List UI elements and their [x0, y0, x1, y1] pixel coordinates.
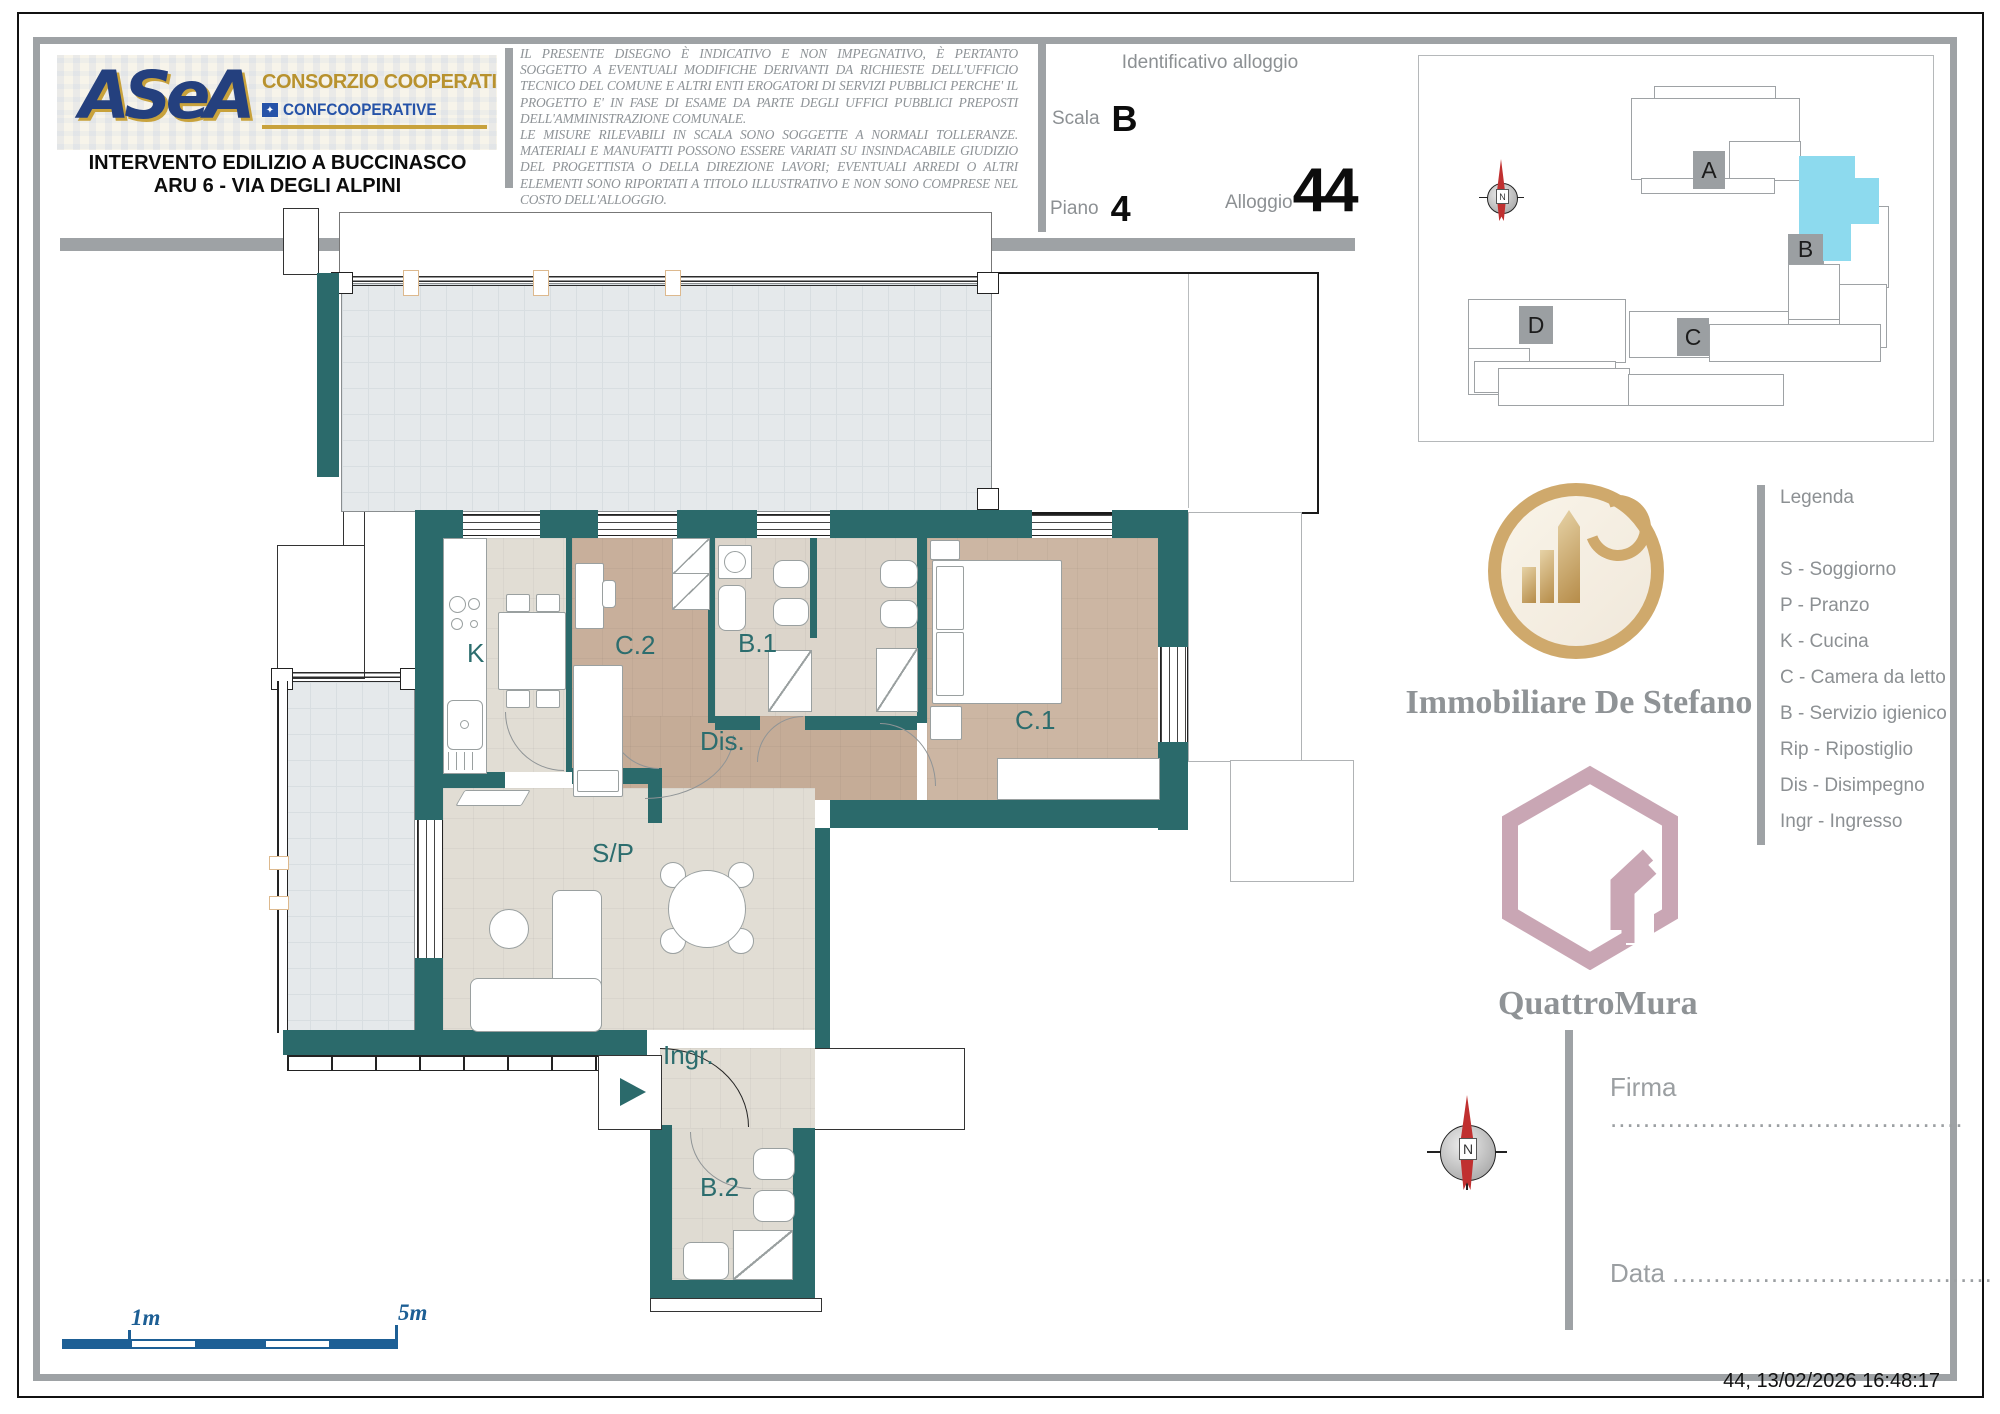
bathroom-sink — [718, 585, 746, 631]
legend-item: Rip - Ripostiglio — [1780, 732, 1947, 768]
sofa-seat — [470, 978, 602, 1032]
project-title: INTERVENTO EDILIZIO A BUCCINASCO ARU 6 -… — [55, 152, 500, 198]
tv-shelf — [455, 790, 530, 806]
room-label-b1: B.1 — [738, 628, 777, 659]
project-title-line1: INTERVENTO EDILIZIO A BUCCINASCO — [55, 152, 500, 175]
project-title-line2: ARU 6 - VIA DEGLI ALPINI — [55, 175, 500, 198]
bidet — [880, 600, 918, 628]
disclaimer-paragraph-2: LE MISURE RILEVABILI IN SCALA SONO SOGGE… — [520, 127, 1018, 208]
legend-item: Dis - Disimpegno — [1780, 768, 1947, 804]
entrance-arrow-icon — [620, 1078, 646, 1106]
scale-label-1m: 1m — [131, 1305, 160, 1331]
legend-item: C - Camera da letto — [1780, 660, 1947, 696]
cooktop-burner — [449, 596, 466, 613]
shower — [876, 648, 918, 712]
room-label-k: K — [467, 638, 484, 669]
room-label-c2: C.2 — [615, 630, 655, 661]
balcony — [283, 681, 415, 1032]
nightstand — [930, 706, 962, 740]
legend-item: Ingr - Ingresso — [1780, 804, 1947, 840]
consorzio-text: CONSORZIO COOPERATIVOSOC. COOP. — [262, 71, 497, 93]
window — [463, 514, 540, 536]
scala-label: Scala — [1052, 108, 1100, 130]
agency-logo-bar — [1522, 567, 1536, 603]
scale-tick — [395, 1325, 398, 1340]
builder-name: QuattroMura — [1498, 985, 1688, 1023]
context-outline — [277, 545, 365, 679]
wardrobe — [672, 573, 710, 610]
keyplan-outline — [1788, 264, 1840, 320]
confcooperative-icon: ✦ — [262, 103, 278, 117]
legend-bar — [1757, 485, 1765, 845]
adjacent-unit-outline — [1230, 760, 1354, 882]
adjacent-unit-outline — [990, 272, 1319, 514]
keyplan-outline — [1709, 324, 1881, 362]
agency-name: Immobiliare De Stefano — [1398, 684, 1760, 722]
asea-logo-text: ASeA — [79, 57, 249, 134]
chair — [536, 594, 560, 612]
wall-segment — [793, 1128, 815, 1298]
cooktop-burner — [468, 598, 480, 610]
window — [598, 514, 677, 536]
block-label-b: B — [1788, 234, 1823, 264]
agency-logo-tower — [1558, 510, 1580, 603]
legend-item: P - Pranzo — [1780, 588, 1947, 624]
legend-item: B - Servizio igienico — [1780, 696, 1947, 732]
railing-post — [977, 488, 999, 510]
legend-item: K - Cucina — [1780, 624, 1947, 660]
piano-value: 4 — [1111, 188, 1131, 230]
sink-drain — [460, 720, 469, 729]
wall-segment — [810, 538, 817, 638]
railing-post — [977, 272, 999, 294]
window — [1160, 647, 1188, 742]
room-label-ingr: Ingr. — [663, 1040, 714, 1071]
toilet — [753, 1148, 795, 1180]
wall-segment — [815, 828, 830, 1048]
terrace — [341, 283, 992, 512]
building-key-plan: A B C D N — [1418, 55, 1934, 442]
window — [1032, 514, 1112, 536]
logo-underline — [262, 125, 487, 129]
bidet — [773, 598, 809, 626]
context-outline — [283, 208, 319, 275]
north-letter: N — [1459, 1138, 1477, 1160]
wall-segment — [830, 510, 1032, 538]
disclaimer-paragraph-1: IL PRESENTE DISEGNO È INDICATIVO E NON I… — [520, 46, 1018, 127]
kitchen-drawers — [448, 752, 480, 770]
adjacent-unit-outline — [1188, 512, 1302, 762]
builder-logo-hexagon — [1500, 765, 1680, 970]
room-label-b2: B.2 — [700, 1172, 739, 1203]
keyplan-outline — [1628, 374, 1784, 406]
wall-segment — [677, 510, 757, 538]
confcooperative-text: CONFCOOPERATIVE — [283, 100, 437, 120]
data-line: Data ...................................… — [1610, 1258, 1993, 1289]
scale-tick — [128, 1330, 131, 1340]
alloggio-label: Alloggio — [1225, 192, 1293, 222]
toilet — [773, 560, 809, 588]
alloggio-value: 44 — [1293, 160, 1356, 222]
cooktop-burner — [451, 618, 463, 630]
context-outline — [650, 1298, 822, 1312]
identificativo-heading: Identificativo alloggio — [1060, 52, 1360, 74]
railing-mullion — [269, 856, 289, 870]
railing-mullion — [665, 270, 681, 296]
wall-segment — [1112, 510, 1158, 538]
toilet — [880, 560, 918, 588]
wall-segment — [650, 1125, 672, 1298]
shower — [768, 650, 812, 712]
wall-segment — [540, 510, 598, 538]
wardrobe — [997, 758, 1160, 800]
shower — [733, 1230, 793, 1280]
pillow — [577, 770, 619, 792]
signature-bar — [1565, 1030, 1573, 1330]
scala-value: B — [1112, 98, 1138, 140]
chair — [506, 594, 530, 612]
data-label: Data — [1610, 1258, 1665, 1288]
balcony-railing — [277, 672, 420, 682]
bidet — [753, 1190, 795, 1222]
north-letter: N — [1496, 189, 1509, 204]
coffee-table — [489, 909, 529, 949]
bathroom-sink — [683, 1242, 729, 1280]
agency-logo-bar — [1540, 550, 1554, 603]
divider-bar — [505, 48, 513, 188]
window — [757, 514, 830, 536]
data-dots: ....................................... — [1672, 1258, 1993, 1288]
legend-list: S - Soggiorno P - Pranzo K - Cucina C - … — [1780, 552, 1947, 840]
block-label-c: C — [1677, 318, 1709, 356]
railing-mullion — [269, 896, 289, 910]
wall-segment — [566, 538, 572, 772]
kitchen-table — [498, 612, 566, 690]
cooktop-burner — [470, 620, 478, 628]
wardrobe — [672, 538, 710, 575]
legend-title: Legenda — [1780, 487, 1854, 509]
nightstand — [930, 540, 960, 560]
keyplan-outline — [1729, 141, 1801, 181]
divider-bar — [1038, 42, 1046, 232]
wall-segment — [830, 800, 1160, 828]
block-label-d: D — [1519, 306, 1553, 344]
wall-segment — [415, 772, 505, 788]
keyplan-outline — [1498, 368, 1630, 406]
company-logo: ASeA CONSORZIO COOPERATIVOSOC. COOP. ✦ C… — [57, 55, 497, 150]
railing-mullion — [403, 270, 419, 296]
chair — [506, 690, 530, 708]
pillow — [936, 632, 964, 696]
wall-segment — [1158, 510, 1188, 647]
pillow — [936, 566, 964, 630]
wall-segment — [415, 958, 443, 1032]
wall-segment — [283, 1030, 647, 1055]
firma-dots: ........................................… — [1610, 1103, 1964, 1133]
block-label-a: A — [1693, 151, 1725, 189]
washer-drum — [724, 551, 746, 573]
room-label-sp: S/P — [592, 838, 634, 869]
room-label-c1: C.1 — [1015, 705, 1055, 736]
print-stamp: 44, 13/02/2026 16:48:17 — [1723, 1370, 1940, 1393]
scale-label-5m: 5m — [398, 1300, 427, 1326]
firma-label: Firma — [1610, 1072, 1676, 1102]
desk — [575, 563, 604, 629]
disclaimer-text: IL PRESENTE DISEGNO È INDICATIVO E NON I… — [520, 46, 1018, 208]
wall-segment — [317, 273, 339, 477]
chair — [536, 690, 560, 708]
piano-label: Piano — [1050, 198, 1099, 220]
wall-segment — [917, 538, 927, 723]
stair-landing-outline — [813, 1048, 965, 1130]
room-label-dis: Dis. — [700, 726, 745, 757]
balcony-door-window — [417, 820, 443, 958]
legend-item: S - Soggiorno — [1780, 552, 1947, 588]
wall-segment — [1158, 742, 1188, 830]
wall-segment — [650, 1280, 815, 1298]
railing-mullion — [533, 270, 549, 296]
floorplan-sheet: ASeA CONSORZIO COOPERATIVOSOC. COOP. ✦ C… — [0, 0, 2000, 1414]
dining-table — [668, 870, 746, 948]
context-line — [1188, 274, 1189, 508]
firma-line: Firma ..................................… — [1610, 1072, 2000, 1134]
desk-chair — [602, 580, 616, 608]
